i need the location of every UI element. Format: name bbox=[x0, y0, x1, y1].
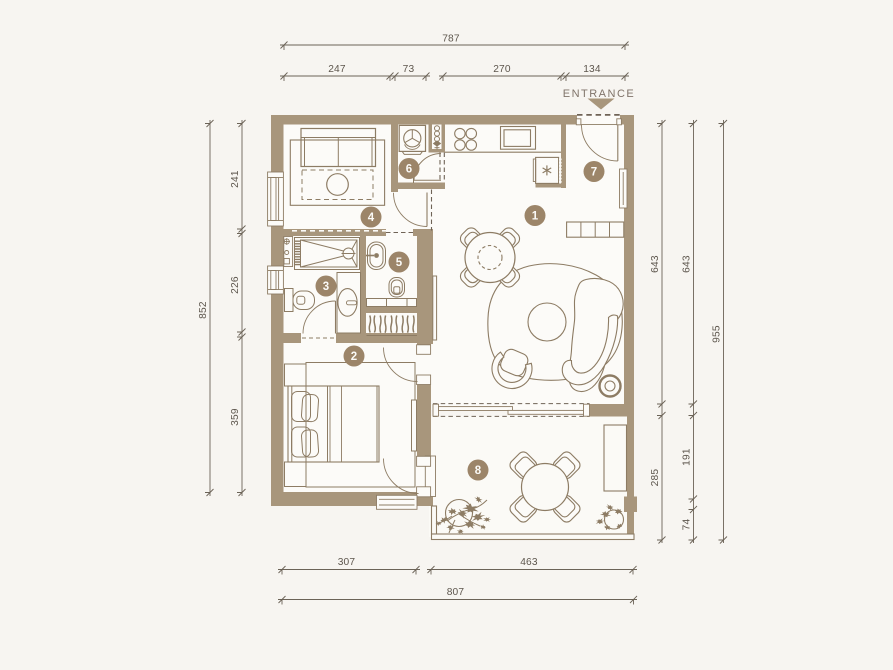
svg-text:270: 270 bbox=[493, 64, 511, 75]
svg-text:307: 307 bbox=[338, 557, 356, 568]
svg-text:226: 226 bbox=[230, 276, 241, 294]
svg-text:955: 955 bbox=[712, 325, 723, 343]
svg-text:5: 5 bbox=[396, 257, 403, 269]
svg-text:787: 787 bbox=[442, 34, 460, 45]
svg-text:8: 8 bbox=[475, 465, 482, 477]
svg-text:643: 643 bbox=[682, 255, 693, 273]
svg-text:1: 1 bbox=[532, 211, 539, 223]
svg-text:359: 359 bbox=[230, 408, 241, 426]
svg-text:807: 807 bbox=[447, 587, 465, 598]
svg-text:74: 74 bbox=[682, 519, 693, 531]
svg-text:ENTRANCE: ENTRANCE bbox=[563, 88, 636, 100]
svg-text:134: 134 bbox=[583, 64, 601, 75]
svg-text:852: 852 bbox=[198, 301, 209, 319]
svg-text:247: 247 bbox=[328, 64, 346, 75]
svg-text:463: 463 bbox=[520, 557, 538, 568]
svg-text:643: 643 bbox=[650, 255, 661, 273]
svg-text:191: 191 bbox=[682, 448, 693, 466]
svg-text:4: 4 bbox=[368, 212, 375, 224]
svg-text:241: 241 bbox=[230, 170, 241, 188]
svg-text:3: 3 bbox=[323, 281, 329, 293]
svg-text:285: 285 bbox=[650, 469, 661, 487]
svg-text:73: 73 bbox=[403, 64, 415, 75]
svg-text:6: 6 bbox=[406, 164, 412, 176]
svg-text:7: 7 bbox=[591, 167, 597, 179]
svg-text:2: 2 bbox=[351, 351, 357, 363]
